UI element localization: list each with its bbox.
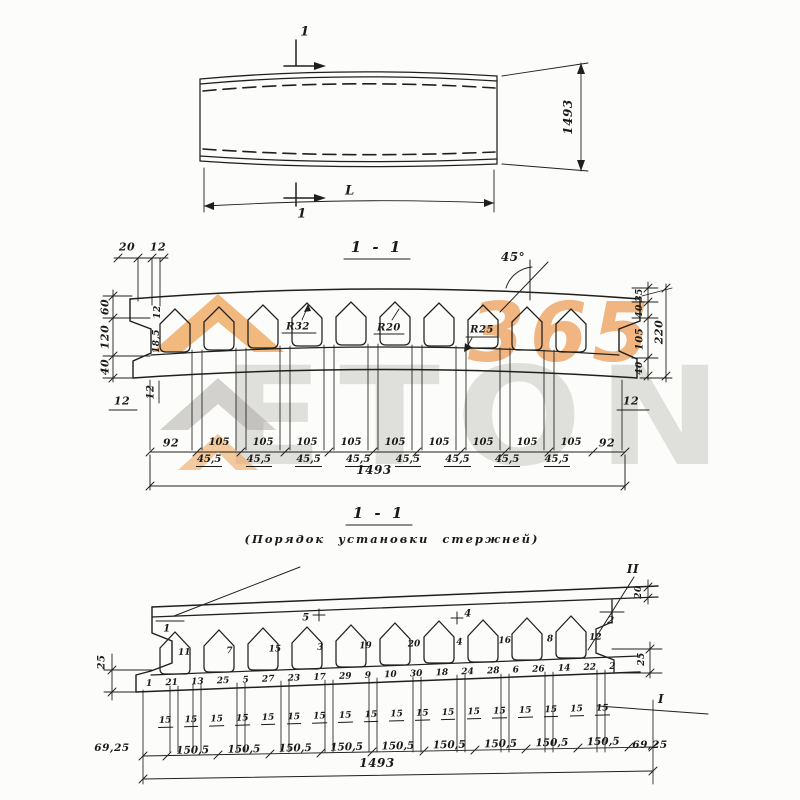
- dim-label: 15: [518, 706, 533, 718]
- rod-number: 26: [532, 664, 545, 674]
- dim-label: 40: [635, 304, 645, 318]
- dim-label: 15: [312, 711, 327, 723]
- dim-label: 105: [473, 437, 494, 448]
- dim-label: 150,5: [330, 741, 363, 754]
- dim-label: 105: [209, 437, 230, 448]
- rod-number: 20: [408, 639, 421, 649]
- dim-label: 92: [163, 437, 179, 450]
- roman-numeral-mark: II: [627, 562, 639, 576]
- dim-label: 15: [286, 712, 301, 724]
- dim-label: 45,5: [246, 454, 272, 467]
- dim-label: 35: [635, 288, 645, 302]
- dim-label: 15: [595, 703, 610, 715]
- dim-label: 15: [209, 714, 224, 726]
- dim-label: 150,5: [279, 742, 312, 755]
- dim-label: 12: [153, 305, 163, 319]
- length-dim-label: L: [345, 184, 355, 199]
- rod-number: 24: [461, 667, 474, 677]
- dim-label: 105: [635, 328, 646, 350]
- radius-label: R32: [286, 322, 310, 333]
- dim-label: 105: [517, 437, 538, 448]
- dim-label: 220: [653, 320, 666, 344]
- section-subtitle: (Порядок установки стержней): [245, 532, 540, 546]
- dim-label: 12: [150, 241, 166, 254]
- rod-number: 18: [435, 668, 448, 678]
- rod-number: 27: [262, 674, 275, 684]
- dim-label: 45,5: [196, 454, 222, 467]
- radius-label: R20: [377, 323, 401, 334]
- dim-label: 15: [415, 708, 430, 720]
- rod-mark: 5: [302, 613, 309, 624]
- rod-number: 1: [146, 679, 153, 689]
- rod-mark: 1: [163, 624, 170, 635]
- dim-label: 105: [297, 437, 318, 448]
- width-dim-label: 1493: [561, 99, 575, 134]
- rod-number: 10: [384, 670, 397, 680]
- dim-label: 15: [235, 713, 250, 725]
- rod-number: 3: [317, 643, 324, 653]
- dim-label: 12: [114, 395, 130, 408]
- dim-label: 15: [261, 713, 276, 725]
- dim-label: 18,5: [152, 329, 162, 353]
- rod-number: 11: [178, 648, 191, 658]
- dim-label: 45,5: [444, 454, 470, 467]
- rod-number: 17: [313, 672, 326, 682]
- dim-label: 150,5: [227, 743, 260, 756]
- dim-label: 105: [561, 437, 582, 448]
- dim-label: 150,5: [176, 744, 209, 757]
- dim-label: 25: [97, 655, 108, 670]
- rod-number: 12: [589, 632, 602, 642]
- dim-label: 45,5: [295, 454, 321, 467]
- rod-number: 29: [339, 671, 352, 681]
- total-dim-label: 1493: [356, 463, 391, 477]
- rod-mark: 2: [607, 616, 614, 627]
- dim-label: 25: [637, 652, 647, 666]
- dim-label: 15: [184, 715, 199, 727]
- dim-label: 69,25: [632, 739, 667, 751]
- dim-label: 40: [99, 359, 112, 375]
- rod-number: 13: [191, 677, 204, 687]
- radius-label: R25: [470, 325, 494, 336]
- dim-label: 20: [634, 585, 644, 599]
- rod-number: 9: [365, 671, 372, 681]
- dim-label: 15: [338, 711, 353, 723]
- dim-label: 150,5: [535, 737, 568, 750]
- dim-label: 15: [158, 716, 173, 728]
- dim-label: 15: [543, 705, 558, 717]
- rod-number: 15: [268, 644, 281, 654]
- dim-label: 150,5: [381, 740, 414, 753]
- dim-label: 60: [99, 299, 112, 315]
- dim-label: 105: [429, 437, 450, 448]
- dim-label: 15: [569, 704, 584, 716]
- rod-number: 30: [410, 669, 423, 679]
- section-cut-mark-top: 1: [300, 25, 310, 40]
- total-dim-label: 1493: [359, 756, 394, 770]
- rod-number: 14: [558, 663, 571, 673]
- roman-numeral-mark: I: [658, 692, 664, 706]
- dim-label: 15: [389, 709, 404, 721]
- section-title: 1 - 1: [351, 238, 404, 256]
- dim-label: 105: [385, 437, 406, 448]
- dim-label: 12: [146, 385, 157, 400]
- angle-label: 45°: [501, 250, 525, 264]
- dim-label: 92: [599, 437, 615, 450]
- dim-label: 15: [441, 708, 456, 720]
- dim-label: 20: [119, 241, 135, 254]
- rod-number: 22: [583, 662, 596, 672]
- dim-label: 15: [466, 707, 481, 719]
- rod-mark: 4: [464, 609, 471, 620]
- dim-label: 15: [492, 706, 507, 718]
- dim-label: 150,5: [433, 739, 466, 752]
- rod-number: 19: [359, 641, 372, 651]
- section-title: 1 - 1: [353, 504, 406, 522]
- dim-label: 45,5: [494, 454, 520, 467]
- dim-label: 40: [635, 361, 645, 375]
- dim-label: 12: [623, 395, 639, 408]
- dim-label: 45,5: [395, 454, 421, 467]
- rod-number: 4: [456, 638, 463, 648]
- dim-label: 150,5: [587, 736, 620, 749]
- dim-label: 15: [364, 710, 379, 722]
- rod-number: 21: [165, 678, 178, 688]
- rod-number: 23: [288, 673, 301, 683]
- blueprint-sheet: ETON 365: [0, 0, 800, 800]
- section-cut-mark-bottom: 1: [297, 207, 307, 222]
- dim-label: 105: [341, 437, 362, 448]
- dim-label: 69,25: [94, 742, 129, 754]
- dim-label: 45,5: [544, 454, 570, 467]
- rod-number: 7: [226, 646, 233, 656]
- rod-number: 6: [513, 665, 520, 675]
- rod-number: 5: [242, 675, 249, 685]
- rod-number: 28: [487, 666, 500, 676]
- dim-label: 105: [253, 437, 274, 448]
- rod-number: 25: [217, 676, 230, 686]
- rod-number: 2: [609, 662, 616, 672]
- rod-number: 8: [547, 634, 554, 644]
- dim-label: 150,5: [484, 738, 517, 751]
- rod-number: 16: [498, 636, 511, 646]
- dim-label: 120: [99, 325, 112, 349]
- spacing-dim-row: 105105105105105105105105105: [197, 437, 593, 448]
